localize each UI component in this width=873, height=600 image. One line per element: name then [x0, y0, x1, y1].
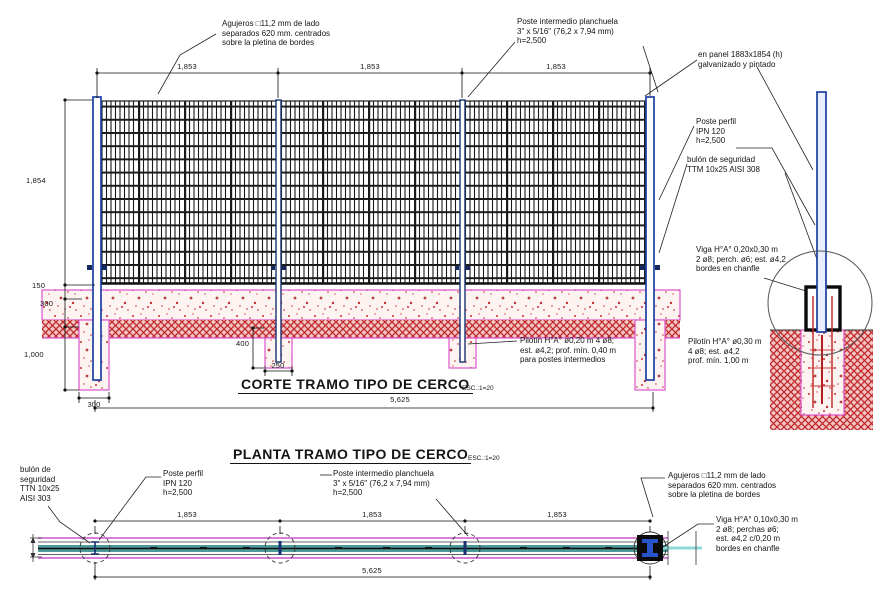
annotation-panel: en panel 1883x1854 (h) galvanizado y pin…: [698, 50, 783, 69]
plan-flatbar-1: [279, 541, 282, 555]
plan-annotation-security-bolt: bulón de seguridad TTN 10x25 AISI 303: [20, 465, 60, 503]
annotation-intermediate-post: Poste intermedio planchuela 3" x 5/16" (…: [517, 17, 618, 46]
mesh-panel: [97, 101, 652, 283]
post-intermediate-2: [460, 100, 465, 362]
plan-annotation-intermediate-post: Poste intermedio planchuela 3" x 5/16" (…: [333, 469, 434, 498]
plan-annotation-post-profile: Poste perfil IPN 120 h=2,500: [163, 469, 203, 498]
plan-dim-span-2: 1,853: [347, 511, 397, 520]
post-ipn-left: [93, 97, 101, 380]
section-scale-note: ESC.:1=20: [462, 385, 494, 392]
cad-drawing: Agujeros □11,2 mm de lado separados 620 …: [0, 0, 873, 600]
plan-scale-note: ESC.:1=20: [468, 455, 500, 462]
annotation-security-bolt: bulón de seguridad TTM 10x25 AISI 308: [687, 155, 760, 174]
dim-250: 250: [264, 362, 292, 371]
plan-title: PLANTA TRAMO TIPO DE CERCO: [230, 446, 471, 464]
dim-total-section: 5,625: [340, 396, 460, 405]
dim-span-1: 1,853: [162, 63, 212, 72]
dim-panel-height: 1,854: [26, 177, 46, 186]
annotation-beam: Viga H°A° 0,20x0,30 m 2 ø8; perch. ø6; e…: [696, 245, 786, 274]
dim-footing-width: 300: [80, 401, 108, 410]
plan-annotation-holes: Agujeros □11,2 mm de lado separados 620 …: [668, 471, 776, 500]
plan-dim-span-3: 1,853: [532, 511, 582, 520]
dim-300: 300: [40, 300, 53, 309]
detail-post: [817, 92, 826, 332]
plan-dim-total: 5,625: [312, 567, 432, 576]
annotation-end-pile: Pilotín H°A° ø0,30 m 4 ø8; est. ø4,2 pro…: [688, 337, 762, 366]
dim-span-3: 1,853: [531, 63, 581, 72]
post-ipn-right: [646, 97, 654, 380]
annotation-post-profile: Poste perfil IPN 120 h=2,500: [696, 117, 736, 146]
annotation-holes: Agujeros □11,2 mm de lado separados 620 …: [222, 19, 330, 48]
annotation-mid-pile: Pilotín H°A° ø0,20 m 4 ø8; est. ø4,2; pr…: [520, 336, 616, 365]
dim-1000: 1,000: [24, 351, 44, 360]
post-intermediate-1: [276, 100, 281, 362]
drawing-linework: [0, 0, 873, 600]
plan-annotation-beam: Viga H°A° 0,10x0,30 m 2 ø8; perchas ø6; …: [716, 515, 798, 553]
viga-band: [42, 290, 680, 320]
dim-150: 150: [32, 282, 45, 291]
plan-dim-span-1: 1,853: [162, 511, 212, 520]
section-title: CORTE TRAMO TIPO DE CERCO: [238, 376, 473, 394]
dim-span-2: 1,853: [345, 63, 395, 72]
plan-flatbar-2: [464, 541, 467, 555]
dim-400: 400: [236, 340, 249, 349]
